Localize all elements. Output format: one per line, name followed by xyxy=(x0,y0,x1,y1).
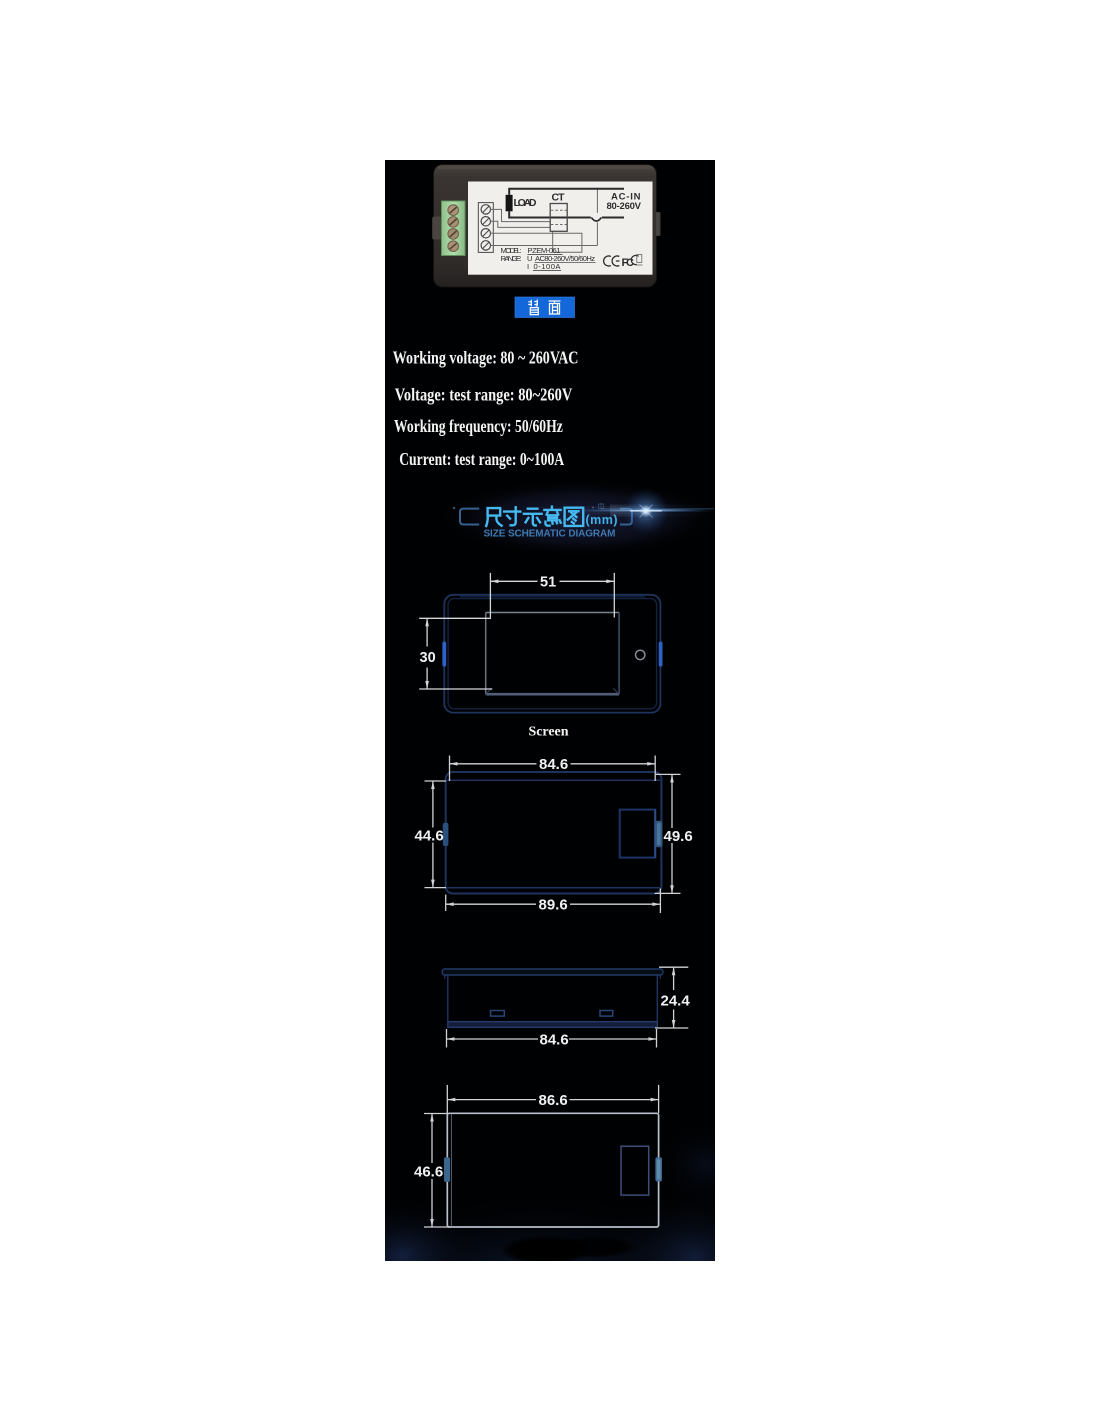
svg-text:Working frequency: 50/60Hz: Working frequency: 50/60Hz xyxy=(394,417,563,436)
svg-text:RANGE:: RANGE: xyxy=(501,254,522,263)
svg-text:I: I xyxy=(527,262,529,271)
svg-text:Working voltage: 80 ~ 260VAC: Working voltage: 80 ~ 260VAC xyxy=(393,349,579,368)
svg-text:80-260V: 80-260V xyxy=(607,201,642,212)
svg-text:Current: test range: 0~100A: Current: test range: 0~100A xyxy=(399,451,564,470)
svg-text:84.6: 84.6 xyxy=(539,756,568,773)
svg-text:86.6: 86.6 xyxy=(539,1092,568,1109)
svg-text:CT: CT xyxy=(552,192,566,204)
svg-text:30: 30 xyxy=(420,650,436,666)
svg-text:49.6: 49.6 xyxy=(664,828,693,845)
svg-text:84.6: 84.6 xyxy=(540,1031,569,1048)
svg-text:LOAD: LOAD xyxy=(514,197,537,209)
svg-text:24.4: 24.4 xyxy=(661,992,691,1009)
svg-text:44.6: 44.6 xyxy=(415,827,444,844)
svg-text:SIZE SCHEMATIC DIAGRAM: SIZE SCHEMATIC DIAGRAM xyxy=(484,528,616,539)
svg-text:51: 51 xyxy=(540,575,556,591)
svg-text:46.6: 46.6 xyxy=(414,1164,443,1181)
svg-text:0-100A: 0-100A xyxy=(534,262,562,271)
svg-text:Screen: Screen xyxy=(529,725,569,740)
svg-text:89.6: 89.6 xyxy=(539,897,568,914)
svg-text:Voltage: test range: 80~260V: Voltage: test range: 80~260V xyxy=(395,384,573,405)
